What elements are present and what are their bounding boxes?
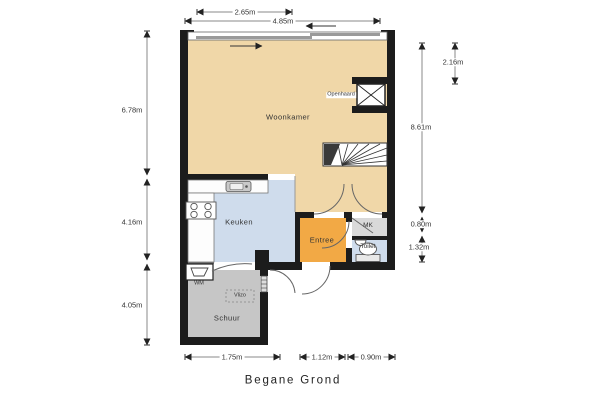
keuken-label: Keuken xyxy=(225,218,253,226)
dim-line-left-405 xyxy=(144,264,150,345)
vlizo-label: Vlizo xyxy=(234,293,246,299)
dim-top-485: 4.85m xyxy=(271,17,296,25)
dim-left-405: 4.05m xyxy=(120,301,145,309)
door-arc-schuur-exterior xyxy=(270,270,295,293)
dim-right-861: 8.61m xyxy=(409,123,434,131)
dim-right-080: 0.80m xyxy=(409,220,434,228)
door-arc-keuken-schuur xyxy=(212,264,252,271)
entree-label: Entree xyxy=(310,236,335,244)
woonkamer-label: Woonkamer xyxy=(266,113,310,121)
dim-right-132: 1.32m xyxy=(407,243,432,251)
schuur-label: Schuur xyxy=(214,314,240,322)
door-arc-front-door xyxy=(302,266,330,294)
fireplace-icon xyxy=(357,84,385,106)
washing-machine-icon xyxy=(186,264,213,280)
dim-right-216: 2.16m xyxy=(441,58,466,66)
dim-left-678: 6.78m xyxy=(120,106,145,114)
dim-left-416: 4.16m xyxy=(120,218,145,226)
dim-top-265: 2.65m xyxy=(233,8,258,16)
stove-icon xyxy=(186,202,216,219)
dim-bottom-090: 0.90m xyxy=(359,353,384,361)
wm-label: WM xyxy=(194,281,204,287)
staircase xyxy=(323,143,387,166)
openhaard-label: Openhaard xyxy=(326,92,356,98)
mk-label: MK xyxy=(363,223,373,230)
dim-bottom-112: 1.12m xyxy=(310,353,335,361)
dim-line-left-678 xyxy=(144,31,150,175)
toilet-label: Toilet xyxy=(360,244,375,251)
dim-bottom-175: 1.75m xyxy=(220,353,245,361)
schuur-door-leaf xyxy=(261,276,267,292)
page-title: Begane Grond xyxy=(245,375,341,387)
floorplan: Woonkamer Keuken Entree MK Toilet Schuur… xyxy=(0,0,600,400)
floorplan-canvas xyxy=(0,0,600,400)
sink-icon xyxy=(226,182,251,192)
